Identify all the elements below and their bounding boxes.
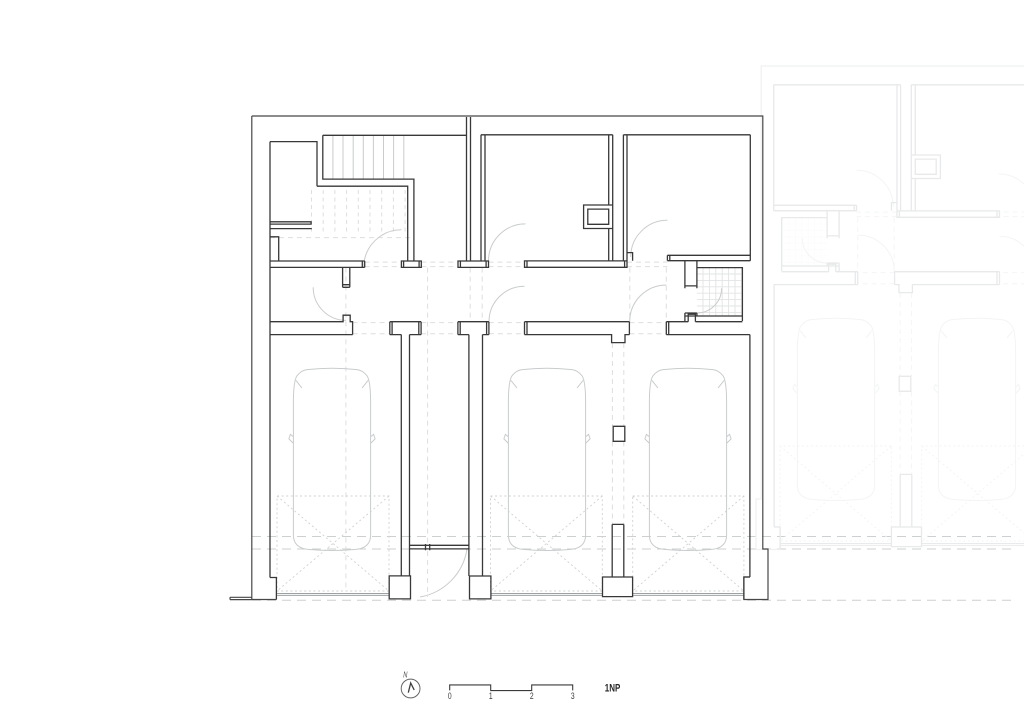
svg-text:1: 1: [489, 691, 493, 701]
svg-text:N: N: [403, 672, 408, 680]
svg-text:3: 3: [571, 691, 575, 701]
svg-text:0: 0: [448, 691, 452, 701]
svg-text:1NP: 1NP: [605, 682, 621, 695]
svg-text:2: 2: [530, 691, 534, 701]
